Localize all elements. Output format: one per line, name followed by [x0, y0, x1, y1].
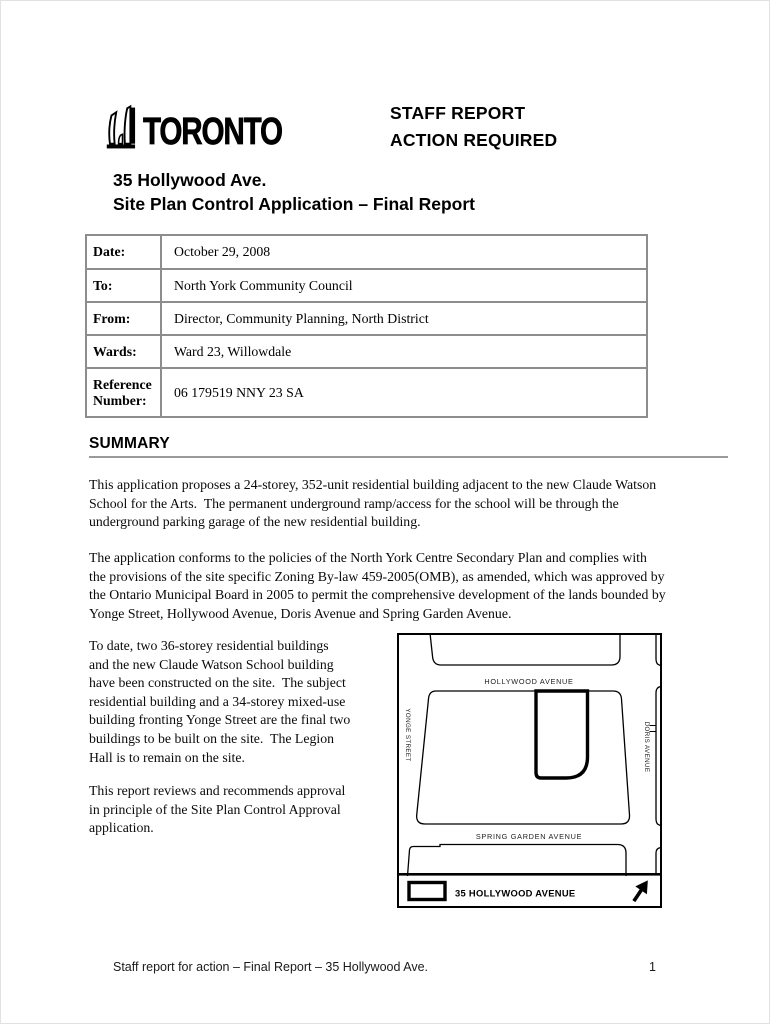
page-title: 35 Hollywood Ave. Site Plan Control Appl…	[113, 169, 475, 216]
summary-left-column: To date, two 36-storey residential build…	[89, 637, 399, 838]
report-type-heading: STAFF REPORT ACTION REQUIRED	[390, 100, 557, 154]
row-value: October 29, 2008	[161, 235, 647, 269]
summary-divider-rule	[89, 456, 728, 458]
street-label-spring-garden-avenue: SPRING GARDEN AVENUE	[476, 832, 582, 841]
summary-paragraph-1: This application proposes a 24-storey, 3…	[89, 476, 749, 532]
legend-swatch	[409, 883, 445, 900]
map-block-south	[408, 845, 627, 877]
report-type-line1: STAFF REPORT	[390, 100, 557, 127]
map-doris-line-middle	[656, 687, 660, 826]
summary-paragraph-4: This report reviews and recommends appro…	[89, 782, 399, 838]
map-doris-line-upper	[656, 635, 660, 666]
row-label: From:	[86, 302, 161, 335]
site-location-map: HOLLYWOOD AVENUE YONGE STREET DORIS AVEN…	[397, 633, 662, 908]
page-number: 1	[649, 960, 656, 974]
subject-site-parcel	[536, 691, 588, 778]
legend-label: 35 HOLLYWOOD AVENUE	[455, 888, 575, 899]
row-value: Ward 23, Willowdale	[161, 335, 647, 368]
site-map-drawing: HOLLYWOOD AVENUE YONGE STREET DORIS AVEN…	[399, 635, 660, 906]
table-row-from: From: Director, Community Planning, Nort…	[86, 302, 647, 335]
row-value: 06 179519 NNY 23 SA	[161, 368, 647, 417]
north-arrow-icon	[628, 876, 654, 905]
summary-paragraph-3: To date, two 36-storey residential build…	[89, 637, 399, 767]
staff-report-page: TORONTO STAFF REPORT ACTION REQUIRED 35 …	[0, 0, 770, 1024]
row-value: North York Community Council	[161, 269, 647, 302]
map-block-north	[430, 635, 620, 665]
map-main-block	[417, 691, 630, 824]
page-title-line1: 35 Hollywood Ave.	[113, 169, 475, 193]
table-row-reference-number: Reference Number: 06 179519 NNY 23 SA	[86, 368, 647, 417]
table-row-wards: Wards: Ward 23, Willowdale	[86, 335, 647, 368]
summary-paragraph-2: The application conforms to the policies…	[89, 549, 749, 623]
row-label: To:	[86, 269, 161, 302]
page-title-line2: Site Plan Control Application – Final Re…	[113, 193, 475, 217]
table-row-to: To: North York Community Council	[86, 269, 647, 302]
report-type-line2: ACTION REQUIRED	[390, 127, 557, 154]
toronto-logo-wordmark: TORONTO	[143, 111, 282, 154]
row-label: Date:	[86, 235, 161, 269]
legend-divider	[399, 873, 660, 876]
footer-text: Staff report for action – Final Report –…	[113, 960, 428, 974]
street-label-yonge-street: YONGE STREET	[404, 708, 411, 761]
report-info-table: Date: October 29, 2008 To: North York Co…	[85, 234, 648, 418]
row-label: Reference Number:	[86, 368, 161, 417]
street-label-hollywood-avenue: HOLLYWOOD AVENUE	[484, 677, 573, 686]
map-doris-line-lower	[656, 848, 660, 875]
row-value: Director, Community Planning, North Dist…	[161, 302, 647, 335]
table-row-date: Date: October 29, 2008	[86, 235, 647, 269]
toronto-city-hall-icon	[106, 104, 139, 157]
summary-heading: SUMMARY	[89, 435, 170, 453]
row-label: Wards:	[86, 335, 161, 368]
street-label-doris-avenue: DORIS AVENUE	[643, 722, 650, 773]
